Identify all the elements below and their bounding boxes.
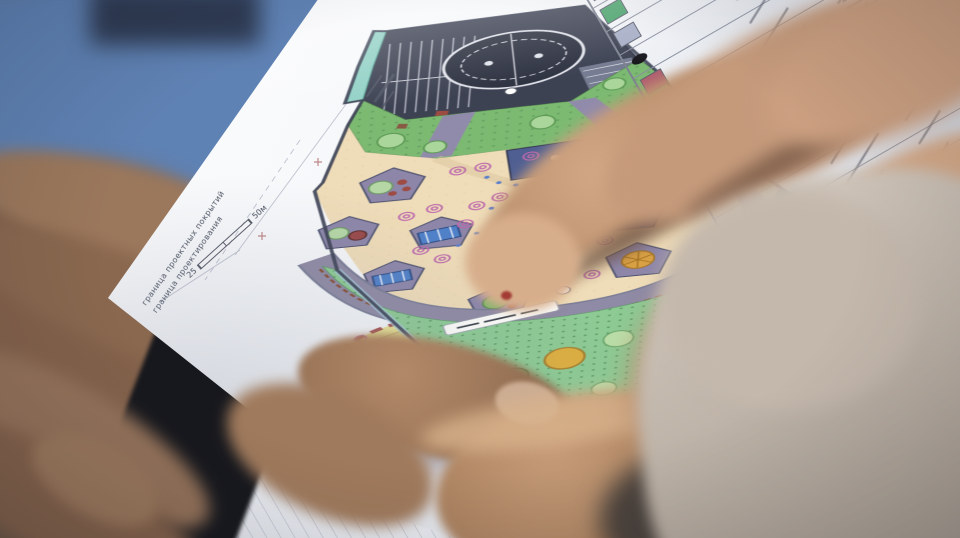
right-fingertip — [465, 213, 580, 311]
person-left-collar — [90, 0, 260, 45]
sleeve-fold — [660, 190, 920, 410]
photo-scene: граница проектных покрытий граница проек… — [0, 0, 960, 538]
fingertip-red-mark — [501, 291, 512, 300]
